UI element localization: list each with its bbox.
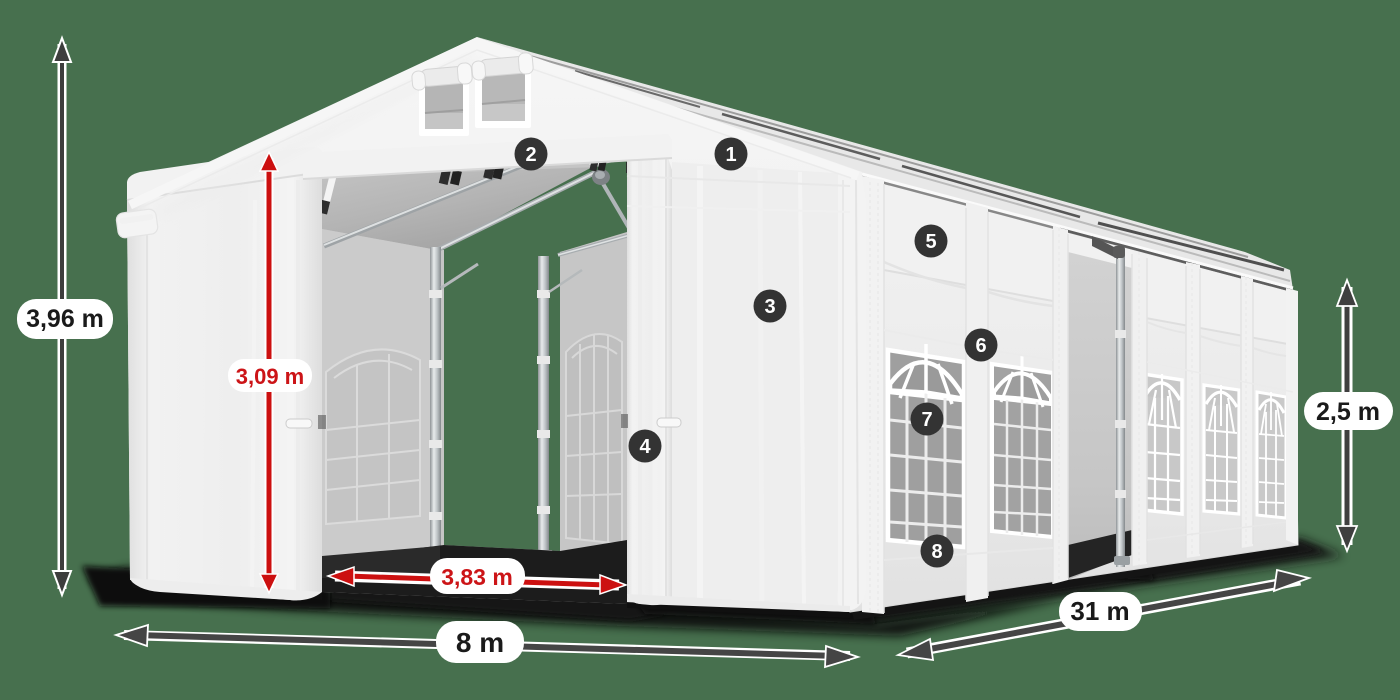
svg-text:31 m: 31 m	[1070, 596, 1129, 626]
svg-text:8: 8	[931, 541, 942, 563]
svg-text:3,96 m: 3,96 m	[26, 305, 104, 333]
svg-text:3,09 m: 3,09 m	[236, 364, 305, 389]
svg-text:2,5 m: 2,5 m	[1316, 398, 1380, 426]
svg-text:3: 3	[764, 296, 775, 318]
svg-text:5: 5	[925, 231, 936, 253]
svg-text:1: 1	[725, 144, 736, 166]
svg-text:4: 4	[639, 436, 651, 458]
svg-text:2: 2	[525, 144, 536, 166]
svg-text:8 m: 8 m	[456, 627, 504, 658]
svg-text:6: 6	[975, 335, 986, 357]
svg-text:3,83 m: 3,83 m	[441, 564, 513, 590]
svg-text:7: 7	[921, 409, 932, 431]
